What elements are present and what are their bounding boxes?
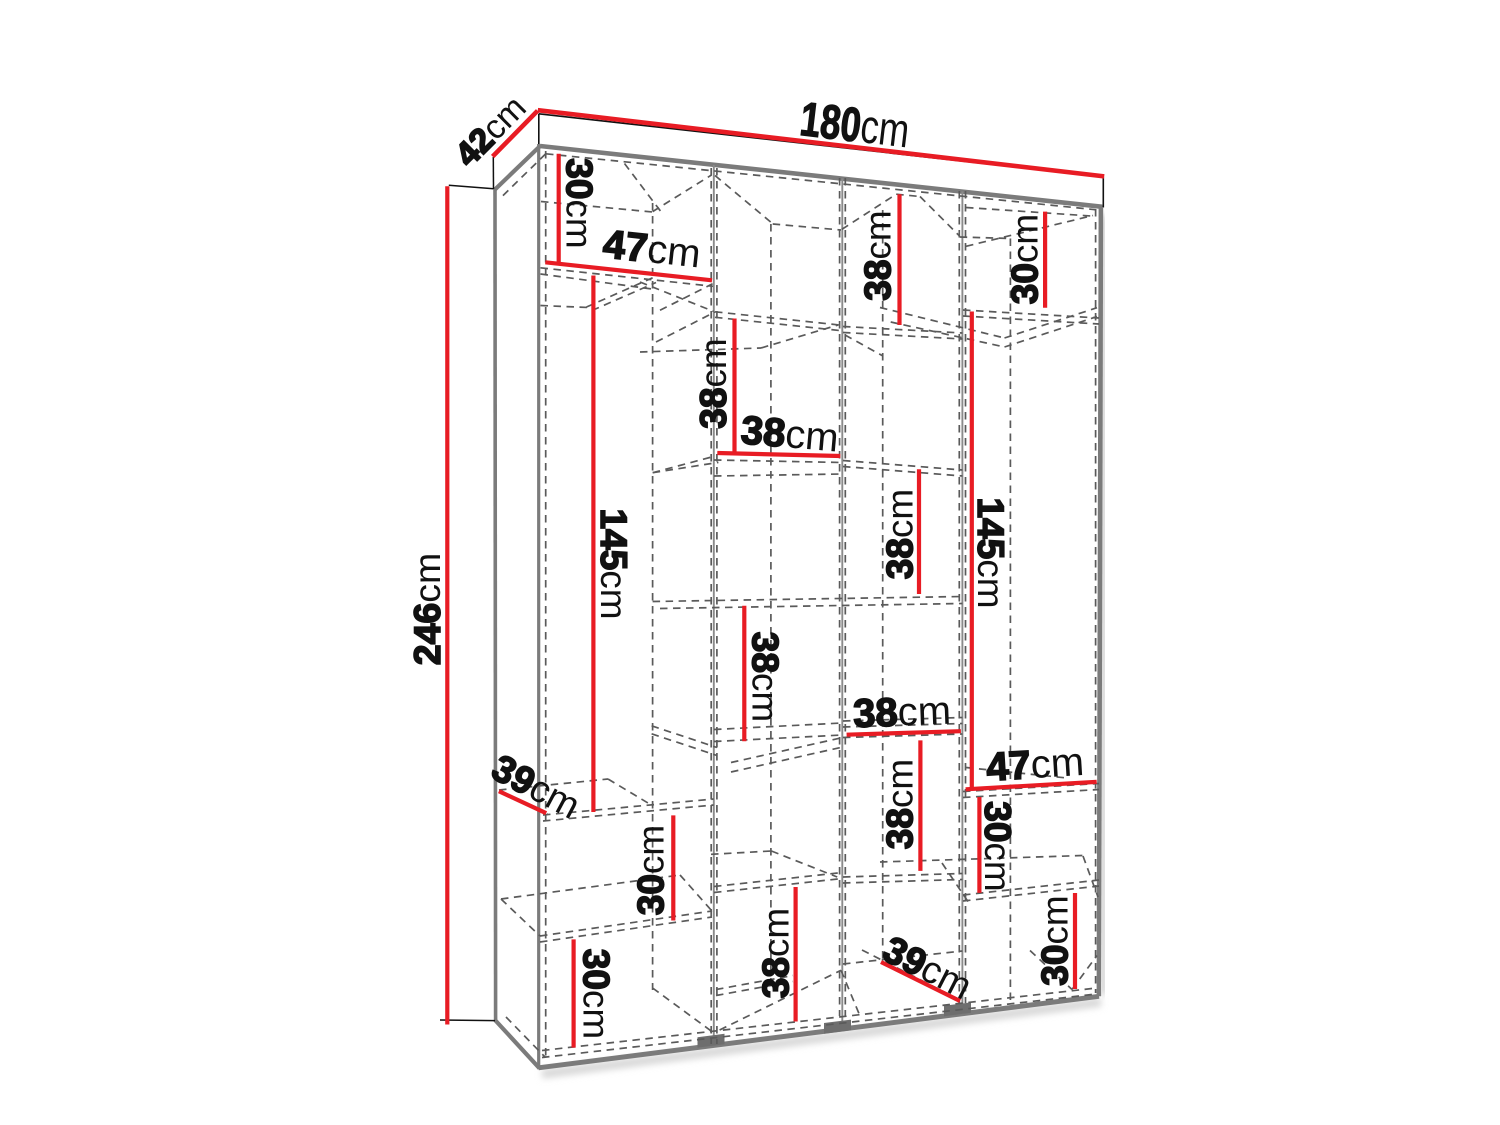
svg-text:38cm: 38cm [745,632,786,722]
svg-text:38cm: 38cm [879,489,920,579]
svg-text:145cm: 145cm [970,497,1011,608]
svg-text:38cm: 38cm [755,908,796,998]
svg-text:38cm: 38cm [879,759,920,849]
svg-text:30cm: 30cm [576,949,617,1039]
svg-text:38cm: 38cm [852,689,951,736]
svg-text:38cm: 38cm [857,210,898,300]
svg-text:30cm: 30cm [1034,895,1075,985]
svg-text:30cm: 30cm [559,158,600,248]
svg-text:38cm: 38cm [739,408,840,460]
svg-text:47cm: 47cm [985,740,1085,790]
svg-text:38cm: 38cm [693,338,734,428]
svg-text:30cm: 30cm [977,801,1018,891]
svg-text:246cm: 246cm [406,553,448,666]
svg-text:30cm: 30cm [630,825,671,915]
svg-text:145cm: 145cm [593,508,634,619]
svg-text:30cm: 30cm [1004,214,1045,304]
